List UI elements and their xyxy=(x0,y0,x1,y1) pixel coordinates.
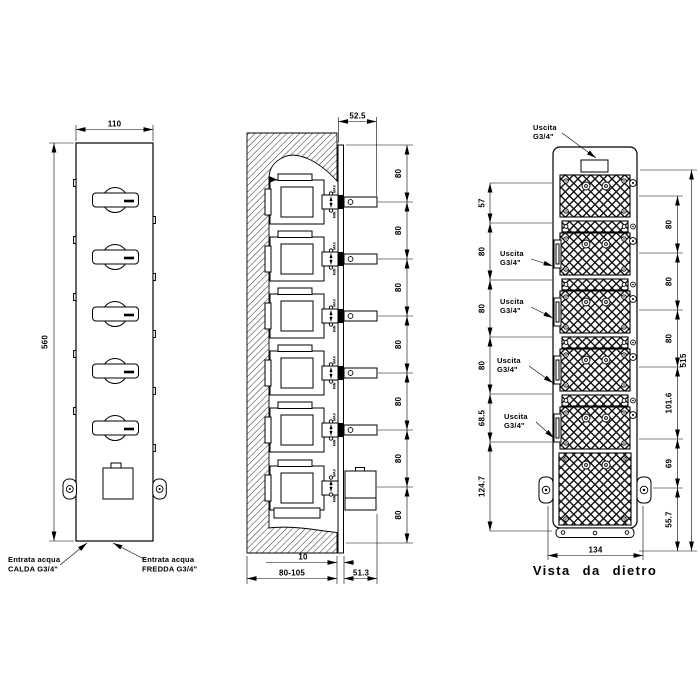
outlet-2-line2: G3/4" xyxy=(500,258,521,267)
section-spout-box xyxy=(345,471,376,498)
dim-80-1: 80 xyxy=(394,169,403,179)
inlet-cold-callout: Entrata acqua FREDDA G3/4" xyxy=(113,543,198,574)
dim-124-7: 124.7 xyxy=(478,476,487,497)
outlet-callout-4: Uscita G3/4" xyxy=(497,356,553,383)
section-handle-3 xyxy=(338,309,377,323)
cartridge-4 xyxy=(265,345,338,395)
outlet-5-line1: Uscita xyxy=(504,412,528,421)
back-spacer-4 xyxy=(562,395,635,406)
dim-68-5: 68.5 xyxy=(478,409,487,426)
front-spout-box xyxy=(103,468,133,499)
section-handle-2 xyxy=(338,252,377,266)
section-spout-base xyxy=(345,498,376,510)
outlet-3-line1: Uscita xyxy=(500,297,524,306)
outlet-top-line2: G3/4" xyxy=(533,132,554,141)
section-view: 80 80 80 80 80 80 80 52.5 10 xyxy=(247,112,413,585)
dim-69: 69 xyxy=(665,459,674,469)
back-slot-1 xyxy=(554,240,561,268)
dim-wall-depth: 80-105 xyxy=(247,556,337,584)
outlet-2-line1: Uscita xyxy=(500,249,524,258)
dim-10: 10 xyxy=(298,553,308,562)
outlet-callout-5: Uscita G3/4" xyxy=(504,412,554,438)
back-slot-3 xyxy=(554,356,561,384)
dim-80-6: 80 xyxy=(394,454,403,464)
technical-drawing-page: MAX MIN xyxy=(0,0,700,700)
back-ear-right xyxy=(637,477,651,503)
inlet-hot-line2: CALDA G3/4" xyxy=(8,565,58,574)
dim-left-80-1: 80 xyxy=(478,247,487,257)
dim-560: 560 xyxy=(41,335,50,349)
cap-screw-mid xyxy=(593,531,597,535)
front-ear-left xyxy=(63,479,77,499)
dim-front-width: 110 xyxy=(76,120,153,142)
outlet-callout-3: Uscita G3/4" xyxy=(500,297,553,318)
dim-80-3: 80 xyxy=(394,283,403,293)
cartridge-6 xyxy=(265,460,338,510)
cartridge-6-base xyxy=(274,508,320,518)
dim-plate-offset: 10 xyxy=(266,553,354,570)
outlet-5-line2: G3/4" xyxy=(504,421,525,430)
back-bottom-grille xyxy=(559,453,631,525)
back-spacer-2 xyxy=(562,279,635,290)
back-ear-left xyxy=(539,477,553,503)
front-ear-right xyxy=(153,479,167,499)
back-spacer-3 xyxy=(562,337,635,348)
dim-57: 57 xyxy=(478,198,487,208)
cartridge-5 xyxy=(265,402,338,452)
cartridge-3 xyxy=(265,288,338,338)
dim-80-7: 80 xyxy=(394,510,403,520)
inlet-cold-line1: Entrata acqua xyxy=(142,555,195,564)
back-module-1 xyxy=(560,175,636,217)
outlet-3-line2: G3/4" xyxy=(500,306,521,315)
dim-handle-depth: 52.5 xyxy=(339,112,377,197)
cap-screw-right xyxy=(625,531,629,535)
cartridge-1 xyxy=(265,174,338,224)
back-view-title: Vista da dietro xyxy=(533,563,657,578)
dim-trim-depth: 51.3 xyxy=(344,514,377,584)
back-spacer-1 xyxy=(562,221,635,232)
dim-80-2: 80 xyxy=(394,226,403,236)
dim-110: 110 xyxy=(108,120,122,129)
dim-left-80-2: 80 xyxy=(478,304,487,314)
section-handle-4 xyxy=(338,366,377,380)
dim-right-80-2: 80 xyxy=(665,277,674,287)
dim-left-80-3: 80 xyxy=(478,361,487,371)
inlet-cold-line2: FREDDA G3/4" xyxy=(142,565,198,574)
dim-515: 515 xyxy=(679,353,688,367)
dim-134: 134 xyxy=(589,546,603,555)
inlet-hot-callout: Entrata acqua CALDA G3/4" xyxy=(8,543,87,574)
dim-55-7: 55.7 xyxy=(665,511,674,528)
back-module-2 xyxy=(560,233,636,275)
back-top-outlet xyxy=(581,160,608,172)
front-view: 110 560 Entrata acqua CALDA G3/4" Entrat… xyxy=(8,120,198,574)
dim-101-6: 101.6 xyxy=(665,392,674,413)
back-slot-4 xyxy=(554,414,561,442)
section-handle-1 xyxy=(338,195,377,209)
back-view: Uscita G3/4" Uscita G3/4" Uscita G3/4" U… xyxy=(478,123,698,578)
dim-right-80-3: 80 xyxy=(665,334,674,344)
inlet-hot-line1: Entrata acqua xyxy=(8,555,61,564)
back-module-4 xyxy=(560,349,636,391)
drawing-svg: MAX MIN xyxy=(0,0,700,700)
back-module-3 xyxy=(560,291,636,333)
outlet-top-line1: Uscita xyxy=(533,123,557,132)
cartridge-2 xyxy=(265,231,338,281)
front-spout-tab xyxy=(111,463,121,468)
section-handle-5 xyxy=(338,423,377,437)
cap-screw-left xyxy=(561,531,565,535)
outlet-4-line2: G3/4" xyxy=(497,365,518,374)
outlet-callout-2: Uscita G3/4" xyxy=(500,249,553,267)
dim-51-3: 51.3 xyxy=(353,569,370,578)
dim-52-5: 52.5 xyxy=(349,112,366,121)
back-module-5 xyxy=(560,407,636,449)
dim-right-80-1: 80 xyxy=(665,220,674,230)
back-slot-2 xyxy=(554,298,561,326)
dim-80-105: 80-105 xyxy=(279,569,305,578)
dim-80-4: 80 xyxy=(394,340,403,350)
outlet-4-line1: Uscita xyxy=(497,356,521,365)
dim-80-5: 80 xyxy=(394,397,403,407)
